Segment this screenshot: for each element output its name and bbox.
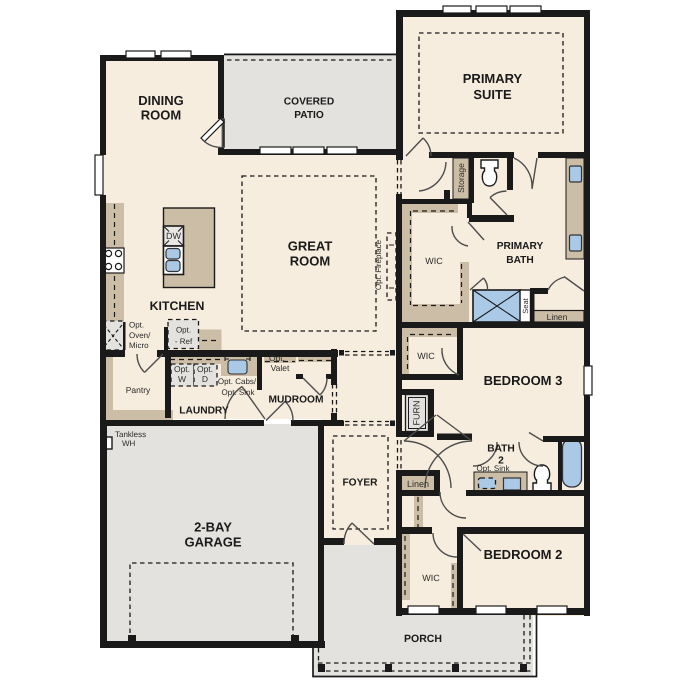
svg-text:MUDROOM: MUDROOM — [269, 395, 324, 406]
svg-text:Seat: Seat — [521, 297, 530, 313]
svg-text:Linen: Linen — [547, 312, 568, 322]
svg-text:BATH: BATH — [487, 444, 515, 455]
svg-text:KITCHEN: KITCHEN — [150, 299, 205, 313]
svg-text:D: D — [202, 374, 208, 384]
svg-text:Valet: Valet — [271, 363, 290, 373]
svg-text:W: W — [178, 374, 186, 384]
svg-text:- Ref: - Ref — [175, 337, 193, 346]
svg-text:FURN: FURN — [412, 401, 422, 426]
svg-text:FOYER: FOYER — [342, 478, 378, 489]
svg-text:Pantry: Pantry — [126, 385, 151, 395]
svg-text:ROOM: ROOM — [141, 108, 181, 123]
svg-text:Opt. Fireplace: Opt. Fireplace — [374, 239, 383, 290]
svg-text:BEDROOM 3: BEDROOM 3 — [484, 373, 563, 388]
svg-text:LAUNDRY: LAUNDRY — [179, 406, 229, 417]
svg-text:DINING: DINING — [138, 93, 184, 108]
svg-text:Oven/: Oven/ — [129, 331, 151, 340]
svg-text:WH: WH — [122, 439, 136, 448]
svg-text:Storage: Storage — [456, 163, 466, 193]
svg-text:DW: DW — [166, 231, 181, 241]
svg-text:PATIO: PATIO — [294, 110, 324, 121]
svg-text:BEDROOM 2: BEDROOM 2 — [484, 547, 563, 562]
svg-text:Opt.: Opt. — [176, 326, 191, 335]
svg-text:Opt.: Opt. — [269, 353, 285, 363]
svg-text:Opt. Cabs/: Opt. Cabs/ — [218, 377, 257, 386]
svg-text:WIC: WIC — [425, 256, 443, 266]
svg-text:Tankless: Tankless — [115, 430, 146, 439]
svg-text:PRIMARY: PRIMARY — [463, 71, 523, 86]
svg-text:ROOM: ROOM — [290, 254, 330, 269]
svg-text:COVERED: COVERED — [284, 97, 334, 108]
svg-text:PORCH: PORCH — [404, 633, 442, 645]
svg-text:Opt. Sink: Opt. Sink — [222, 388, 256, 397]
svg-text:GREAT: GREAT — [288, 239, 333, 254]
svg-text:2-BAY: 2-BAY — [194, 520, 232, 535]
svg-text:Opt. Sink: Opt. Sink — [477, 464, 511, 473]
svg-text:Opt.: Opt. — [174, 364, 190, 374]
svg-text:GARAGE: GARAGE — [184, 535, 241, 550]
svg-text:Linen: Linen — [407, 479, 429, 489]
svg-text:SUITE: SUITE — [473, 87, 512, 102]
svg-text:Micro: Micro — [129, 341, 149, 350]
svg-text:Opt.: Opt. — [129, 321, 144, 330]
svg-text:WIC: WIC — [417, 351, 435, 361]
svg-text:PRIMARY: PRIMARY — [497, 241, 544, 252]
svg-text:BATH: BATH — [506, 255, 534, 266]
svg-text:WIC: WIC — [422, 573, 440, 583]
svg-text:Opt.: Opt. — [197, 364, 213, 374]
